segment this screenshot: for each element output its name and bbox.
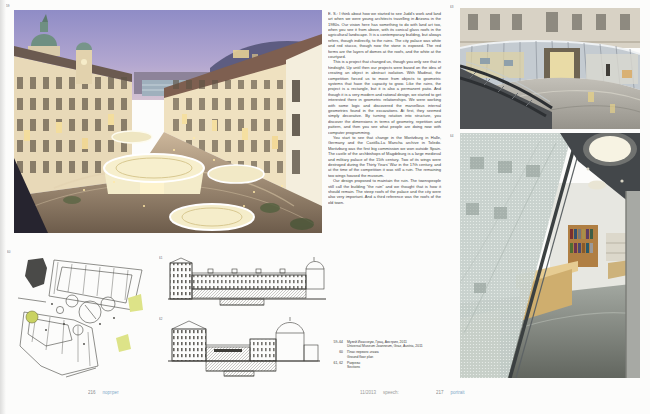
folio-center: 11/2013 speech: [360, 390, 437, 400]
caption-figure-range: 59–64 [328, 340, 347, 348]
caption-item: 60 План первого этажа Ground floor plan [328, 350, 428, 358]
figure-number-59: 59 [6, 4, 9, 7]
photo-courtyard-dusk [14, 10, 322, 233]
section-label-right: portrait [451, 390, 465, 395]
site-plan [16, 254, 154, 384]
page-number-right: 217 [436, 390, 444, 395]
article-paragraph-4: Our design proposed to maintain the ruin… [328, 178, 441, 205]
courtyard-photo-illustration [14, 10, 322, 233]
caption-text-ru: План первого этажа [347, 350, 379, 354]
section-a-illustration [168, 255, 326, 313]
caption-text-ru: Музей Иоаннеум, Грац, Австрия, 2011 [347, 340, 407, 344]
entrance-photo-illustration [460, 8, 640, 129]
article-paragraph-1: E. S.: I think about how we started to s… [328, 11, 441, 60]
caption-item: 59–64 Музей Иоаннеум, Грац, Австрия, 201… [328, 340, 428, 348]
photo-interior-library [460, 133, 640, 378]
page-number-left: 216 [88, 390, 96, 395]
section-b-illustration [168, 317, 320, 383]
section-drawing-a [168, 255, 326, 317]
article-paragraph-3: You start to see that change in the Mori… [328, 135, 441, 178]
site-plan-drawing [16, 254, 154, 380]
section-drawing-b [168, 317, 320, 387]
article-paragraph-2: This is a project that changed us, thoug… [328, 60, 441, 136]
figure-number-60: 60 [7, 250, 10, 253]
folio-left: 216 портрет [88, 390, 150, 400]
caption-figure-range: 60 [328, 350, 347, 358]
magazine-spread: 59 [0, 0, 650, 414]
article-column: E. S.: I think about how we started to s… [328, 11, 442, 237]
section-label-left: портрет [103, 390, 119, 395]
issue-number: 11/2013 [360, 390, 376, 395]
interior-photo-illustration [460, 133, 640, 378]
figure-number-64: 64 [450, 134, 453, 137]
magazine-name: speech: [383, 390, 399, 395]
folio-right: 217 portrait [436, 390, 493, 400]
caption-text-en: Sections [347, 365, 360, 369]
caption-item: 61, 62 Разрезы Sections [328, 360, 428, 368]
figure-number-63: 63 [450, 5, 453, 8]
caption-figure-range: 61, 62 [328, 360, 347, 368]
caption-text-en: Universal Museum Joanneum, Graz, Austria… [347, 344, 423, 348]
figure-number-61: 61 [159, 256, 162, 259]
caption-text-ru: Разрезы [347, 360, 360, 364]
caption-text-en: Ground floor plan [347, 354, 373, 358]
photo-entrance-court [460, 8, 640, 129]
figure-number-62: 62 [159, 317, 162, 320]
